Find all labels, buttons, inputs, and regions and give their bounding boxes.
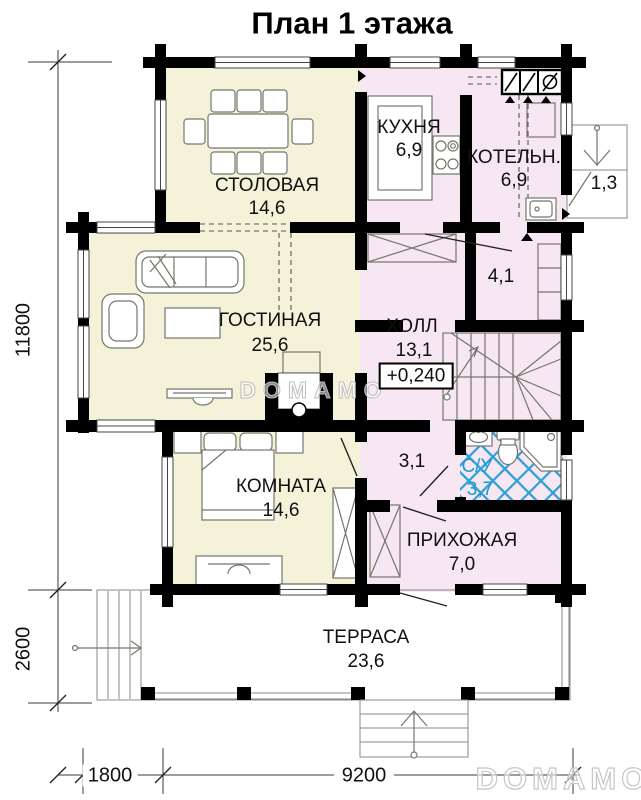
floor-plan-page: DOMAMO DOMAMO План 1 этажа СТОЛОВАЯ 14,6…: [0, 0, 641, 800]
sofa-icon: [136, 251, 244, 293]
floor-plan-drawing: DOMAMO DOMAMO: [0, 0, 641, 800]
stove-icon: [433, 136, 460, 174]
watermark-corner: DOMAMO: [476, 761, 641, 796]
wardrobe-icon: [333, 488, 358, 578]
page-title: План 1 этажа: [251, 5, 452, 44]
dimension-terrace-depth: 2600: [12, 627, 37, 672]
dimension-bay-width-value: 1800: [83, 765, 138, 787]
terrace-entry-arrow-icon: [73, 641, 142, 655]
room-label-hall-area: 13,1: [396, 339, 433, 363]
room-label-porch-area: 1,3: [591, 172, 617, 196]
watermark-center: DOMAMO: [239, 377, 388, 403]
coffee-table-icon: [165, 308, 220, 338]
room-label-corridor-area: 3,1: [399, 450, 425, 474]
room-label-bathroom-area: 3,7: [467, 478, 493, 502]
room-label-boiler-name: КОТЕЛЬН.: [467, 146, 561, 170]
dimension-house-width-value: 9200: [337, 765, 392, 787]
room-label-living-name: ГОСТИНАЯ: [219, 309, 321, 333]
terrace-deck: [73, 590, 571, 758]
room-label-entry-name: ПРИХОЖАЯ: [407, 529, 517, 553]
room-label-bedroom-area: 14,6: [263, 499, 300, 523]
dresser-icon: [196, 556, 282, 587]
room-label-boiler-area: 6,9: [501, 169, 527, 193]
armchair-icon: [102, 294, 144, 348]
toilet-icon: [497, 427, 519, 465]
terrace-steps-icon: [360, 700, 468, 758]
room-label-entry-area: 7,0: [449, 553, 475, 577]
room-label-bedroom-name: КОМНАТА: [236, 475, 326, 499]
washer-icon: [526, 198, 556, 220]
room-label-tambour-area: 4,1: [488, 265, 514, 289]
room-label-bathroom-name: С/У: [461, 455, 492, 479]
room-label-kitchen-area: 6,9: [396, 139, 422, 163]
dimension-house-width: 9200: [337, 764, 392, 789]
elevation-mark: +0,240: [379, 363, 454, 390]
dimension-house-height: 11800: [12, 303, 37, 357]
room-label-kitchen-name: КУХНЯ: [377, 116, 440, 140]
room-label-living-area: 25,6: [252, 334, 289, 358]
room-label-dining-area: 14,6: [249, 197, 286, 221]
room-label-terrace-name: ТЕРРАСА: [323, 626, 410, 650]
dimension-bay-width: 1800: [83, 764, 138, 789]
room-label-dining-name: СТОЛОВАЯ: [215, 174, 319, 198]
room-label-hall-name: ХОЛЛ: [386, 315, 438, 339]
room-label-terrace-area: 23,6: [348, 650, 385, 674]
